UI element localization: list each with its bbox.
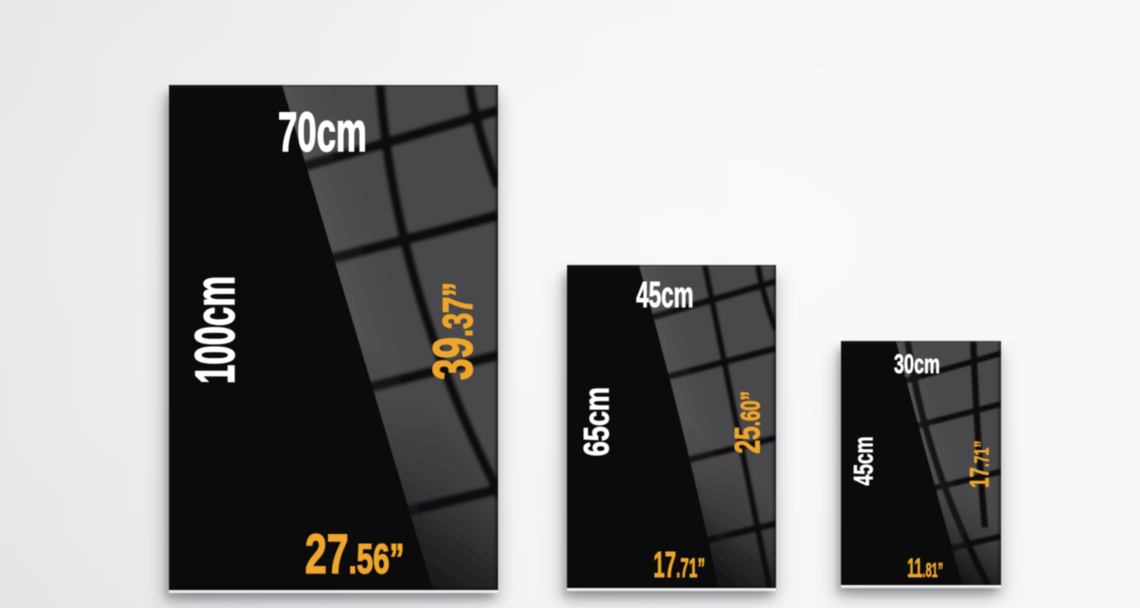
- svg-text:30cm: 30cm: [894, 348, 940, 379]
- svg-text:65cm: 65cm: [576, 387, 617, 456]
- svg-text:17.71”: 17.71”: [964, 441, 994, 488]
- svg-text:27.56”: 27.56”: [305, 523, 404, 586]
- svg-text:45cm: 45cm: [636, 276, 693, 316]
- svg-text:100cm: 100cm: [184, 276, 247, 384]
- svg-text:17.71”: 17.71”: [653, 546, 705, 585]
- svg-text:25.60”: 25.60”: [728, 391, 767, 454]
- svg-text:11.81”: 11.81”: [907, 552, 943, 583]
- svg-text:39.37”: 39.37”: [422, 282, 485, 380]
- svg-text:45cm: 45cm: [848, 436, 878, 485]
- svg-text:70cm: 70cm: [278, 101, 367, 164]
